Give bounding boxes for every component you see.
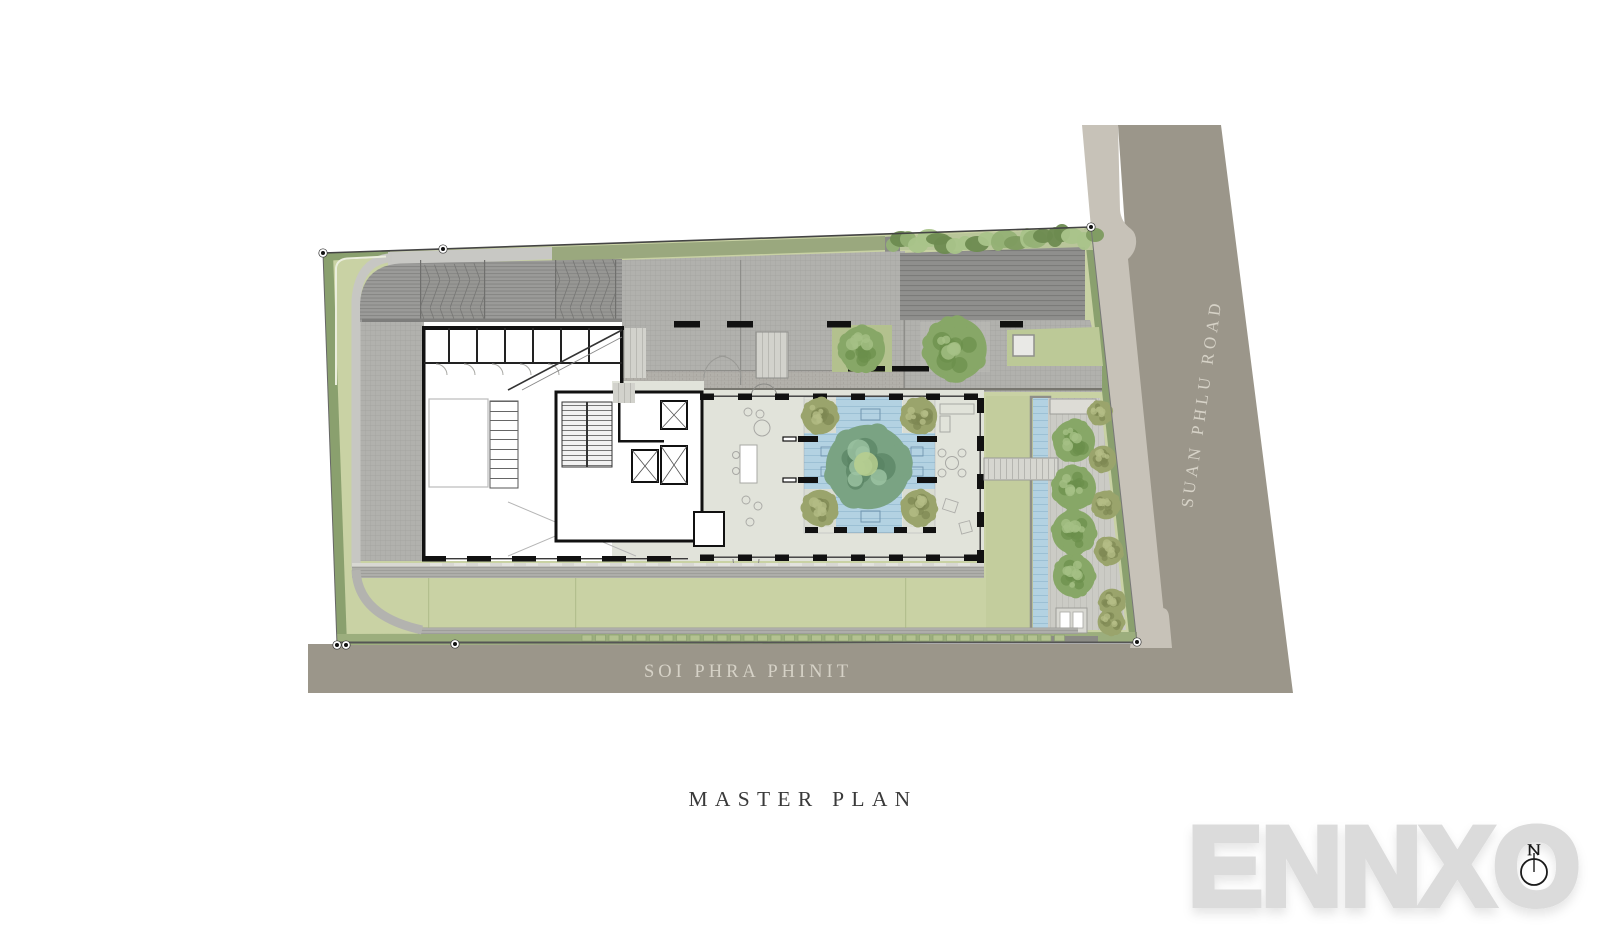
svg-text:SOI PHRA PHINIT: SOI PHRA PHINIT <box>644 662 852 682</box>
svg-text:ENNXO: ENNXO <box>1188 804 1579 929</box>
svg-text:MASTER PLAN: MASTER PLAN <box>688 787 917 811</box>
